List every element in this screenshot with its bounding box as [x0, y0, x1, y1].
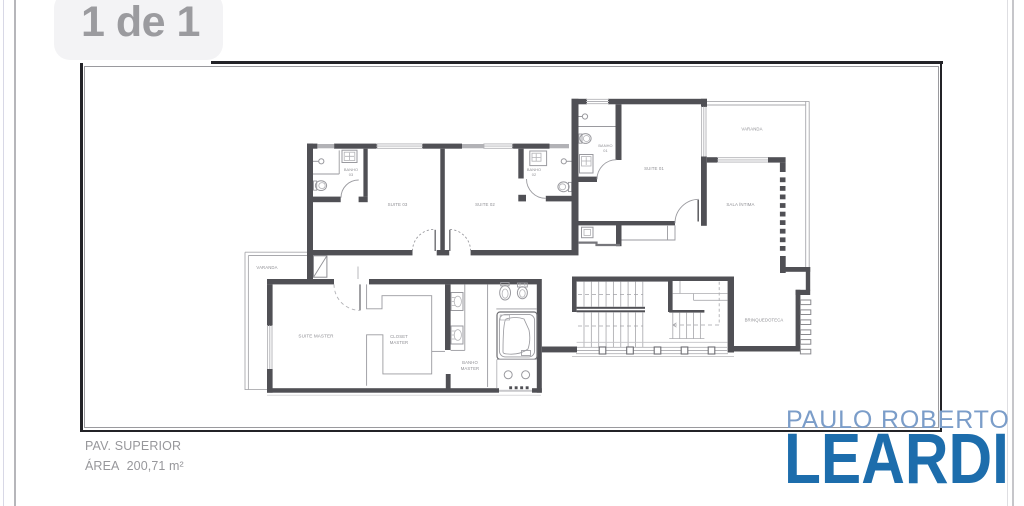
svg-text:SUITE 01: SUITE 01 [644, 166, 664, 171]
svg-text:01: 01 [603, 148, 608, 153]
svg-text:CLOSET: CLOSET [390, 334, 408, 339]
svg-text:03: 03 [349, 172, 354, 177]
svg-text:VARANDA: VARANDA [256, 265, 277, 270]
svg-text:BANHO: BANHO [462, 360, 478, 365]
svg-text:02: 02 [532, 172, 537, 177]
svg-text:MASTER: MASTER [461, 366, 480, 371]
svg-text:VARANDA: VARANDA [741, 127, 762, 132]
svg-text:SALA ÍNTIMA: SALA ÍNTIMA [726, 202, 754, 207]
svg-text:SUITE MASTER: SUITE MASTER [298, 333, 334, 338]
svg-text:BRINQUEDOTECA: BRINQUEDOTECA [745, 317, 784, 322]
svg-text:MASTER: MASTER [390, 340, 409, 345]
svg-text:SUITE 03: SUITE 03 [388, 202, 408, 207]
svg-text:SUITE 02: SUITE 02 [475, 202, 495, 207]
